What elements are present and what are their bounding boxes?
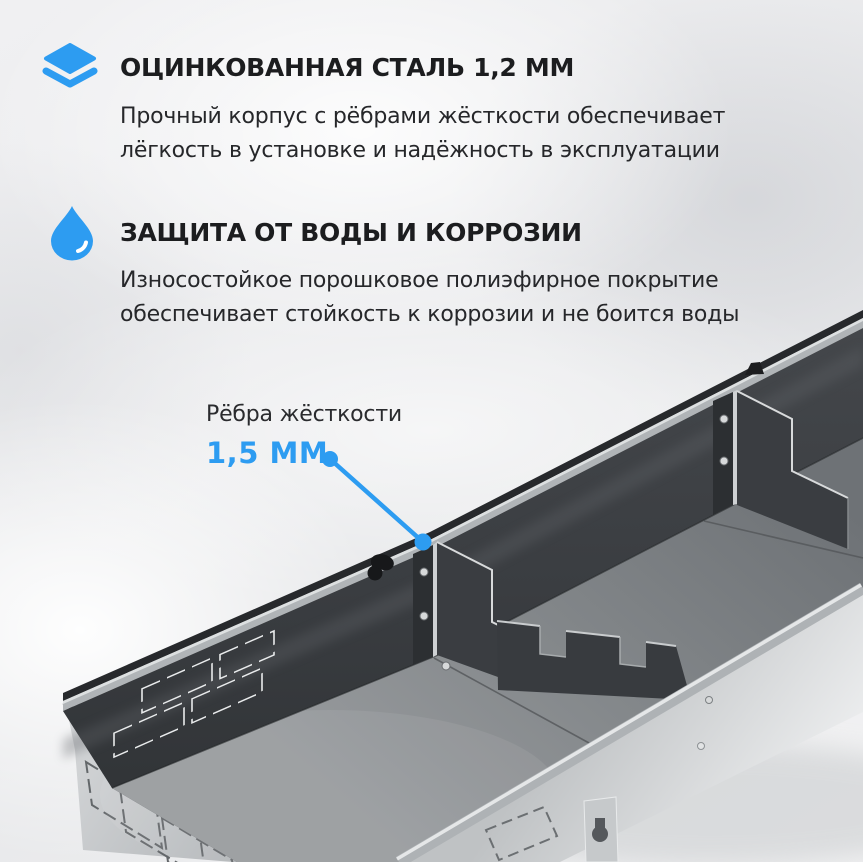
water-drop-icon: [48, 205, 96, 261]
feature-2-line-1: Износостойкое порошковое полиэфирное пок…: [120, 264, 739, 298]
callout-leader-line: [322, 451, 432, 551]
product-infographic: ОЦИНКОВАННАЯ СТАЛЬ 1,2 ММ Прочный корпус…: [0, 0, 863, 862]
feature-1-line-1: Прочный корпус с рёбрами жёсткости обесп…: [120, 100, 725, 134]
layers-icon: [42, 43, 98, 89]
feature-2-text: Износостойкое порошковое полиэфирное пок…: [120, 264, 739, 331]
feature-1-text: Прочный корпус с рёбрами жёсткости обесп…: [120, 100, 725, 167]
feature-1-title: ОЦИНКОВАННАЯ СТАЛЬ 1,2 ММ: [120, 53, 574, 82]
mounting-tab: [584, 797, 618, 862]
feature-2-title: ЗАЩИТА ОТ ВОДЫ И КОРРОЗИИ: [120, 218, 582, 247]
callout-value: 1,5 ММ: [206, 436, 328, 470]
feature-1-line-2: лёгкость в установке и надёжность в эксп…: [120, 134, 725, 168]
callout-label: Рёбра жёсткости: [206, 402, 402, 427]
feature-2-line-2: обеспечивает стойкость к коррозии и не б…: [120, 298, 739, 332]
